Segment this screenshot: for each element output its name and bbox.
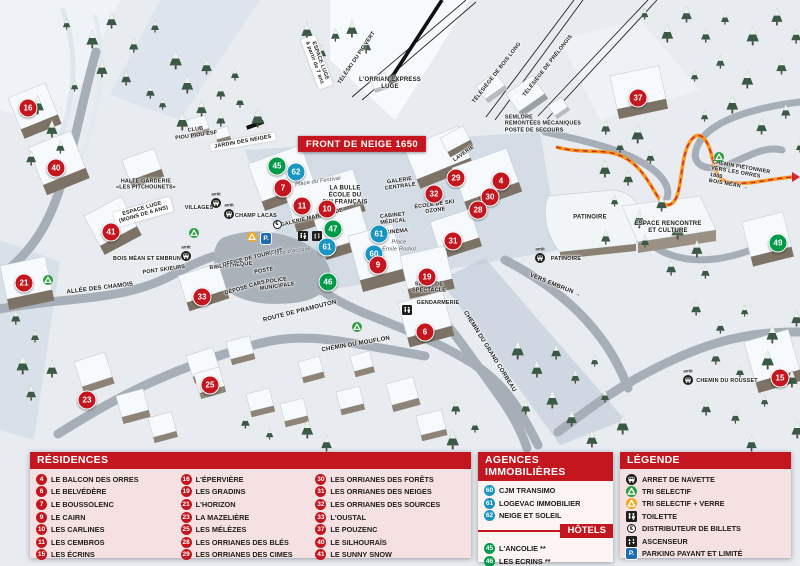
map-marker-28: 28 — [469, 201, 488, 220]
marker-badge-19: 19 — [181, 486, 192, 497]
marker-badge-9: 9 — [36, 512, 47, 523]
map-marker-29: 29 — [447, 169, 466, 188]
legend-item-label: LE POUZENC — [330, 525, 377, 534]
marker-badge-29: 29 — [181, 549, 192, 560]
marker-badge-23: 23 — [181, 512, 192, 523]
map-marker-46: 46 — [319, 273, 338, 292]
bus-icon — [181, 251, 191, 261]
marker-badge-11: 11 — [36, 537, 47, 548]
legend-item-62: 62NEIGE ET SOLEIL — [484, 510, 613, 523]
hotels-panel-title: HÔTELS — [560, 524, 613, 538]
map-marker-61: 61 — [370, 225, 389, 244]
map-euro-icon-wrap: € — [272, 219, 282, 229]
atm-euro-icon: € — [273, 220, 282, 229]
residences-column-3: 30LES ORRIANES DES FORÊTS31LES ORRIANES … — [315, 473, 467, 561]
bus-stop-label: CHEMIN DU ROUSSET — [696, 378, 758, 384]
legend-item-11: 11LES CEMBROS — [36, 536, 181, 549]
map-label-vers-embrun: VERS EMBRUN → — [528, 272, 581, 299]
legend-item-label: LES ORRIANES DES NEIGES — [330, 487, 431, 496]
marker-badge-45: 45 — [484, 543, 495, 554]
legend-item-label: LE CAIRN — [51, 513, 85, 522]
legend-item-label: LE BOUSSOLENC — [51, 500, 114, 509]
residences-column-2: 16L'ÉPERVIÈRE19LES GRADINS21L'HORIZON23L… — [181, 473, 316, 561]
map-label-espace-luge-6ans: ESPACE LUGE (MOINS DE 6 ANS) — [113, 197, 173, 227]
map-marker-40: 40 — [47, 159, 66, 178]
recycle-icon — [43, 275, 53, 285]
toilet-icon — [298, 231, 308, 241]
hotels-divider: HÔTELS — [478, 524, 613, 538]
recycle-glass-icon — [247, 232, 257, 242]
map-marker-21: 21 — [15, 274, 34, 293]
map-recycle-green-icon-wrap — [352, 322, 362, 332]
map-marker-31: 31 — [444, 232, 463, 251]
map-label-route-de-pramouton: ROUTE DE PRAMOUTON — [263, 299, 338, 324]
marker-badge-37: 37 — [315, 524, 326, 535]
legend-item-23: 23LA MAZELIÈRE — [181, 511, 316, 524]
marker-badge-33: 33 — [315, 512, 326, 523]
legende-panel-title: LÉGENDE — [620, 452, 791, 469]
map-marker-33: 33 — [193, 288, 212, 307]
map-label-laverie: LAVERIE — [452, 144, 476, 163]
elevator-icon — [626, 536, 637, 547]
legende-item-label: ASCENSEUR — [642, 537, 688, 546]
map-label-chemin-du-mouflon: CHEMIN DU MOUFLON — [321, 335, 391, 354]
map-marker-49: 49 — [769, 234, 788, 253]
map-marker-62: 62 — [287, 163, 306, 182]
residences-panel: RÉSIDENCES 4LE BALCON DES ORRES6LE BELVÉ… — [30, 452, 471, 558]
map-label-place-emile-rodiol: Place Émile Rodiol — [382, 239, 416, 252]
recycle-icon — [189, 228, 199, 238]
map-label-telesiege-bois-long: TÉLÉSIÈGE DE BOIS LONG — [471, 41, 522, 104]
bus-icon — [224, 209, 234, 219]
legend-item-label: LES GRADINS — [196, 487, 246, 496]
map-marker-41: 41 — [102, 223, 121, 242]
toilet-icon — [402, 305, 412, 315]
legend-item-28: 28LES ORRIANES DES BLÉS — [181, 536, 316, 549]
bus-stop-icon-wrap — [211, 198, 221, 208]
map-label-jardin-des-neiges: JARDIN DES NEIGES — [210, 132, 276, 152]
bus-stop-arret-label: arrêt — [181, 245, 190, 250]
legend-item-label: LES ORRIANES DES FORÊTS — [330, 475, 433, 484]
residences-panel-title: RÉSIDENCES — [30, 452, 471, 469]
map-label-cinema: CINÉMA — [385, 228, 408, 237]
legend-item-33: 33L'OUSTAL — [315, 511, 467, 524]
agences-panel: AGENCES IMMOBILIÈRES 60CJM TRANSIMO61LOG… — [478, 452, 613, 562]
map-label-pont-skieurs: PONT SKIEURS — [142, 264, 185, 276]
bus-icon — [535, 253, 545, 263]
legend-item-label: LES ÉCRINS — [51, 550, 95, 559]
legend-item-label: L'OUSTAL — [330, 513, 366, 522]
legend-item-25: 25LES MÉLÈZES — [181, 523, 316, 536]
toilet-icon — [626, 511, 637, 522]
legend-item-30: 30LES ORRIANES DES FORÊTS — [315, 473, 467, 486]
map-marker-10: 10 — [318, 200, 337, 219]
map-marker-9: 9 — [369, 256, 388, 275]
legend-item-label: L'ANCOLIE ** — [499, 544, 546, 553]
map-marker-16: 16 — [19, 99, 38, 118]
legende-item-label: TOILETTE — [642, 512, 677, 521]
map-marker-7: 7 — [274, 179, 293, 198]
map-label-chemin-pietonnier-1800: CHEMIN PIÉTONNIER VERS LES ORRES 1800 BO… — [708, 159, 772, 195]
map-marker-19: 19 — [418, 268, 437, 287]
marker-badge-31: 31 — [315, 486, 326, 497]
legend-item-41: 41LE SUNNY SNOW — [315, 549, 467, 562]
agences-list: 60CJM TRANSIMO61LOGEVAC IMMOBILIER62NEIG… — [478, 481, 613, 522]
map-recycle-yellow-icon-wrap — [247, 232, 257, 242]
legend-item-label: L'ÉPERVIÈRE — [196, 475, 244, 484]
bus-stop-icon-wrap — [181, 251, 191, 261]
legend-item-31: 31LES ORRIANES DES NEIGES — [315, 486, 467, 499]
legend-item-32: 32LES ORRIANES DES SOURCES — [315, 498, 467, 511]
bus-icon — [626, 474, 637, 485]
map-label-club-piou-piou-esf: CLUB PIOU PIOU ESF — [174, 124, 218, 143]
legende-item: TRI SELECTIF + VERRE — [626, 498, 791, 510]
map-marker-11: 11 — [293, 197, 312, 216]
legende-list: ARRET DE NAVETTE TRI SELECTIF TRI SELECT… — [620, 469, 791, 560]
map-toilet-icon-wrap — [402, 305, 412, 315]
legend-item-label: LES MÉLÈZES — [196, 525, 247, 534]
marker-badge-40: 40 — [315, 537, 326, 548]
legende-item-label: DISTRIBUTEUR DE BILLETS — [642, 524, 741, 533]
bus-icon — [683, 375, 693, 385]
bus-stop-arret-label: arrêt — [211, 192, 220, 197]
legend-item-21: 21L'HORIZON — [181, 498, 316, 511]
recycle-icon — [714, 152, 724, 162]
marker-badge-7: 7 — [36, 499, 47, 510]
map-label-cabinet-medical: CABINET MÉDICAL — [379, 211, 406, 226]
legend-item-label: LE BELVÉDÈRE — [51, 487, 106, 496]
legend-item-label: LE SILHOURAÏS — [330, 538, 386, 547]
map-label-poste: POSTE — [254, 266, 274, 276]
legend-item-label: LA MAZELIÈRE — [196, 513, 250, 522]
map-label-chemin-du-grand-corbeau: CHEMIN DU GRAND CORBEAU — [461, 310, 517, 394]
legende-item: €DISTRIBUTEUR DE BILLETS — [626, 523, 791, 535]
agences-panel-title: AGENCES IMMOBILIÈRES — [478, 452, 613, 481]
map-label-gendarmerie: GENDARMERIE — [417, 300, 460, 306]
marker-badge-15: 15 — [36, 549, 47, 560]
legend-item-label: LES ORRIANES DES BLÉS — [196, 538, 289, 547]
map-parking-icon-wrap: P. — [261, 233, 271, 243]
legend-item-60: 60CJM TRANSIMO — [484, 484, 613, 497]
bus-stop-label: PATINOIRE — [551, 256, 581, 262]
legend-item-label: LOGEVAC IMMOBILIER — [499, 499, 580, 508]
residences-column-1: 4LE BALCON DES ORRES6LE BELVÉDÈRE7LE BOU… — [36, 473, 181, 561]
legend-item-46: 46LES ECRINS ** — [484, 555, 613, 566]
legend-item-label: LES ORRIANES DES SOURCES — [330, 500, 440, 509]
marker-badge-25: 25 — [181, 524, 192, 535]
map-marker-25: 25 — [201, 376, 220, 395]
map-label-halte-garderie: HALTE GARDERIE «LES PITCHOUNETS» — [116, 179, 176, 192]
map-marker-15: 15 — [771, 369, 790, 388]
marker-badge-62: 62 — [484, 510, 495, 521]
map-label-allee-des-chamois: ALLÉE DES CHAMOIS — [66, 281, 133, 296]
legend-item-15: 15LES ÉCRINS — [36, 549, 181, 562]
map-marker-61: 61 — [318, 238, 337, 257]
map-label-espace-luge-7ans: ESPACE LUGE à partir de 7 ans — [301, 35, 333, 90]
legend-item-45: 45L'ANCOLIE ** — [484, 542, 613, 555]
legend-item-9: 9LE CAIRN — [36, 511, 181, 524]
legende-item-label: TRI SELECTIF — [642, 487, 691, 496]
map-label-galerie-centrale: GALERIE CENTRALE — [384, 176, 416, 193]
legende-item: ASCENSEUR — [626, 535, 791, 547]
marker-badge-61: 61 — [484, 498, 495, 509]
marker-badge-46: 46 — [484, 556, 495, 566]
hotels-divider-line — [478, 530, 560, 532]
legend-item-label: LES ECRINS ** — [499, 557, 551, 566]
legend-item-label: LES ORRIANES DES CIMES — [196, 550, 293, 559]
hotels-list: 45L'ANCOLIE **46LES ECRINS **47L'ESCALE … — [478, 539, 613, 566]
atm-euro-icon: € — [627, 524, 636, 533]
legend-item-label: L'HORIZON — [196, 500, 236, 509]
map-marker-32: 32 — [425, 185, 444, 204]
parking-icon: P. — [626, 548, 637, 559]
map-label-lorrian-express-luge: L'ORRIAN EXPRESS LUGE — [359, 77, 421, 91]
recycle-glass-icon — [626, 498, 637, 509]
legend-item-16: 16L'ÉPERVIÈRE — [181, 473, 316, 486]
bus-stop-icon-wrap — [535, 253, 545, 263]
map-marker-37: 37 — [629, 89, 648, 108]
bus-stop-label: BOIS MÉAN ET EMBRUN — [113, 256, 181, 262]
marker-badge-4: 4 — [36, 474, 47, 485]
parking-icon: P. — [261, 233, 271, 244]
marker-badge-60: 60 — [484, 485, 495, 496]
map-label-patinoire-batiment: PATINOIRE — [573, 214, 607, 221]
front-de-neige-banner: FRONT DE NEIGE 1650 — [298, 136, 426, 152]
legende-item-label: PARKING PAYANT ET LIMITÉ — [642, 549, 743, 558]
legende-item: TRI SELECTIF — [626, 485, 791, 497]
map-label-semlore: SEMLORE REMONTÉES MÉCANIQUES POSTE DE SE… — [505, 114, 581, 133]
legend-item-label: CJM TRANSIMO — [499, 486, 555, 495]
recycle-icon — [352, 322, 362, 332]
legend-item-label: LES CEMBROS — [51, 538, 105, 547]
marker-badge-30: 30 — [315, 474, 326, 485]
legend-item-label: LES CARLINES — [51, 525, 105, 534]
marker-badge-28: 28 — [181, 537, 192, 548]
map-toilet-icon-wrap — [298, 231, 308, 241]
legend-item-19: 19LES GRADINS — [181, 486, 316, 499]
bus-stop-arret-label: arrêt — [224, 203, 233, 208]
marker-badge-41: 41 — [315, 549, 326, 560]
marker-badge-6: 6 — [36, 486, 47, 497]
legend-item-label: NEIGE ET SOLEIL — [499, 511, 561, 520]
map-recycle-green-icon-wrap — [43, 275, 53, 285]
bus-icon — [211, 198, 221, 208]
bus-stop-arret-label: arrêt — [535, 247, 544, 252]
map-label-espace-rencontre-et-culture: ESPACE RENCONTRE ET CULTURE — [634, 221, 701, 235]
map-marker-6: 6 — [416, 323, 435, 342]
bus-stop-arret-label: arrêt — [683, 369, 692, 374]
resort-map-page: FRONT DE NEIGE 1650 L'ORRIAN EXPRESS LUG… — [0, 0, 800, 566]
legende-item: TOILETTE — [626, 510, 791, 522]
legende-item-label: ARRET DE NAVETTE — [642, 475, 715, 484]
legend-item-6: 6LE BELVÉDÈRE — [36, 486, 181, 499]
bus-stop-label: VILLAGES — [185, 205, 214, 211]
legend-item-4: 4LE BALCON DES ORRES — [36, 473, 181, 486]
map-recycle-green-icon-wrap — [714, 152, 724, 162]
marker-badge-16: 16 — [181, 474, 192, 485]
map-recycle-green-icon-wrap — [189, 228, 199, 238]
bus-stop-icon-wrap — [683, 375, 693, 385]
legend-item-61: 61LOGEVAC IMMOBILIER — [484, 497, 613, 510]
bus-stop-label: CHAMP LACAS — [235, 213, 277, 219]
legend-item-7: 7LE BOUSSOLENC — [36, 498, 181, 511]
legend-item-29: 29LES ORRIANES DES CIMES — [181, 549, 316, 562]
map-marker-47: 47 — [324, 220, 343, 239]
recycle-icon — [626, 486, 637, 497]
legende-item: P.PARKING PAYANT ET LIMITÉ — [626, 547, 791, 559]
legend-item-label: LE SUNNY SNOW — [330, 550, 392, 559]
bus-stop-icon-wrap — [224, 209, 234, 219]
legend-item-40: 40LE SILHOURAÏS — [315, 536, 467, 549]
map-label-telesiege-prelongis: TÉLÉSIÈGE DE PRÉLONGIS — [522, 34, 574, 99]
map-marker-23: 23 — [78, 391, 97, 410]
legende-item-label: TRI SELECTIF + VERRE — [642, 499, 725, 508]
legende-panel: LÉGENDE ARRET DE NAVETTE TRI SELECTIF TR… — [620, 452, 791, 558]
marker-badge-21: 21 — [181, 499, 192, 510]
marker-badge-32: 32 — [315, 499, 326, 510]
legende-item: ARRET DE NAVETTE — [626, 473, 791, 485]
map-marker-45: 45 — [268, 157, 287, 176]
legend-item-37: 37LE POUZENC — [315, 523, 467, 536]
legend-item-10: 10LES CARLINES — [36, 523, 181, 536]
residences-columns: 4LE BALCON DES ORRES6LE BELVÉDÈRE7LE BOU… — [30, 469, 471, 561]
legend-item-label: LE BALCON DES ORRES — [51, 475, 139, 484]
marker-badge-10: 10 — [36, 524, 47, 535]
